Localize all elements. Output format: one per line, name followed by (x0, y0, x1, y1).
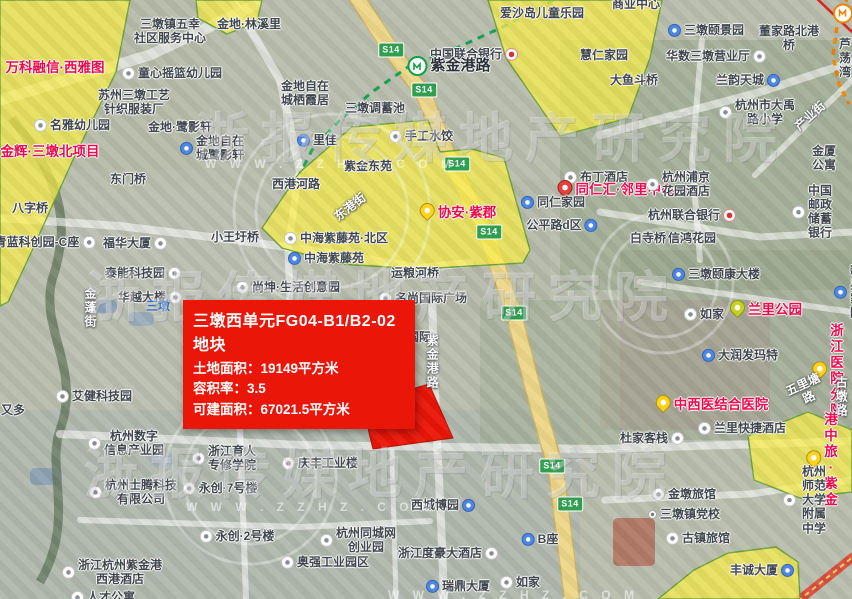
label-text: 青蓝科创园-C座 (0, 235, 79, 249)
label-text: 里佳 (313, 133, 337, 147)
map-label[interactable]: 庆丰工业楼 (282, 456, 358, 470)
building-icon (521, 196, 534, 209)
building-icon (702, 349, 715, 362)
map-label[interactable]: 永创·2号楼 (200, 529, 275, 543)
label-text: 童心摇篮幼儿园 (138, 66, 222, 80)
map-label[interactable]: 杜家客栈 (620, 431, 684, 445)
s14-road-shield: S14 (501, 306, 527, 321)
building-icon (462, 499, 475, 512)
label-text: 华数三墩营业厅 (666, 49, 750, 63)
map-label[interactable]: 杭州师范大学 附属中学 (783, 465, 829, 536)
map-label[interactable]: 三墩调蓄池 (345, 101, 405, 115)
label-text: 杭州士腾科技 有限公司 (105, 478, 177, 506)
poi-icon (192, 452, 205, 465)
building-icon (781, 564, 794, 577)
poi-icon (169, 291, 182, 304)
label-text: 公平路d区 (526, 218, 581, 232)
map-label[interactable]: 兰里快捷酒店 (698, 421, 786, 435)
map-label[interactable]: 慧仁家园 (580, 48, 628, 62)
building-icon (834, 286, 847, 299)
label-text: 名雅幼儿园 (50, 118, 110, 132)
label-text: 八字桥 (12, 201, 48, 215)
map-label[interactable]: 兰里公园 (730, 302, 802, 318)
map-label[interactable]: 协安·紫郡 (420, 205, 497, 221)
label-text: 奥强工业园区 (297, 555, 369, 569)
label-text: 东门桥 (110, 172, 146, 186)
label-text: 尚坤·生活创意园 (252, 280, 340, 294)
label-text: B座 (538, 532, 559, 546)
map-label[interactable]: 青蓝科创园-C座 (0, 235, 95, 249)
poi-icon (684, 308, 697, 321)
map-label[interactable]: 运粮河桥 (391, 266, 439, 280)
label-text: 西城博园 (411, 498, 459, 512)
map-label[interactable]: 三墩镇党校 (648, 507, 720, 521)
building-icon (522, 533, 535, 546)
label-text: 苏州三墩工艺 针织服装厂 (98, 88, 170, 116)
metro-icon-orange (833, 3, 852, 23)
map-label[interactable]: 泰能科技园 (105, 266, 181, 280)
map-label[interactable]: 如家 (500, 575, 540, 589)
map-label[interactable]: 小王圩桥 (211, 230, 259, 244)
s14-road-shield: S14 (557, 497, 583, 512)
map-label[interactable]: 西港河路 (272, 177, 320, 191)
label-text: 又多 (1, 403, 25, 417)
label-text: 董家路北港桥 (758, 24, 821, 52)
label-text: 爱沙岛儿童乐园 (500, 6, 584, 20)
poi-icon (154, 237, 167, 250)
label-text: 艾健科技园 (72, 389, 132, 403)
parcel-callout: 三墩西单元FG04-B1/B2-02地块 土地面积：19149平方米 容积率：3… (183, 300, 415, 429)
label-text: 紫金东苑 (344, 159, 392, 173)
label-text: 同仁家园 (537, 195, 585, 209)
map-label[interactable]: 万科融信·西雅图 (6, 60, 105, 76)
map-label[interactable]: 商业中心 (612, 0, 660, 11)
label-text: 运粮河桥 (391, 266, 439, 280)
map-label[interactable]: 白寺桥 (630, 231, 666, 245)
map-label[interactable]: 人才公寓 (71, 590, 135, 599)
label-text: 金地自在 城鹭影轩 (196, 134, 244, 162)
label-text: 慧仁家园 (580, 48, 628, 62)
poi-icon (485, 547, 498, 560)
poi-icon (284, 232, 297, 245)
metro-station-label[interactable]: 紫金港路 (407, 56, 490, 76)
poi-icon (320, 534, 333, 547)
label-text: 杭州师范大学 附属中学 (799, 465, 829, 536)
label-text: 中海紫藤苑·北区 (300, 231, 388, 245)
label-text: 浙江杭州紫金港 西港酒店 (78, 558, 162, 586)
map-label[interactable]: 八字桥 (12, 201, 48, 215)
map-label[interactable]: 大鱼斗桥 (610, 73, 658, 87)
label-text: 福华大厦 (103, 236, 151, 250)
street (60, 434, 852, 449)
label-text: 小王圩桥 (211, 230, 259, 244)
metro-icon (407, 56, 427, 76)
map-label[interactable]: 东门桥 (110, 172, 146, 186)
map-label[interactable]: B座 (522, 532, 559, 546)
map-label[interactable]: 华数三墩营业厅 (666, 49, 766, 63)
label-text: 紫金港路 (425, 334, 439, 390)
building-icon (180, 142, 193, 155)
map-label[interactable]: 同仁家园 (521, 195, 585, 209)
label-text: 中海紫藤苑 (304, 251, 364, 265)
label-text: 杜家客栈 (620, 431, 668, 445)
map-label[interactable]: 兰韵天城 (716, 73, 780, 87)
poi-icon (389, 130, 402, 143)
label-text: 金辉·三墩北项目 (1, 144, 100, 160)
bank-icon (505, 48, 518, 61)
poi-icon (89, 486, 102, 499)
s14-road-shield: S14 (539, 459, 565, 474)
poi-icon (82, 236, 95, 249)
building-icon (585, 219, 598, 232)
map-label[interactable]: 西城博园 (411, 498, 475, 512)
map-label[interactable]: 中国邮政 储蓄银行 (792, 184, 832, 241)
map-label[interactable]: 浙江育人 专修学院 (192, 444, 256, 472)
building-icon (767, 74, 780, 87)
poi-icon (792, 206, 805, 219)
label-text: 杭州数字 信息产业园 (104, 429, 164, 457)
map-label[interactable]: 如家 (684, 307, 724, 321)
map-label[interactable]: 三墩 (146, 299, 170, 313)
map-label[interactable]: 新星家园 (834, 264, 852, 321)
parcel-callout-plot-ratio: 容积率：3.5 (193, 379, 405, 399)
label-text: 三墩镇党校 (660, 507, 720, 521)
poi-icon (200, 530, 213, 543)
label-text: 紫金港路 (430, 57, 490, 75)
label-text: 如家 (516, 575, 540, 589)
map-label[interactable]: 苏州三墩工艺 针织服装厂 (98, 88, 170, 116)
label-text: 古镇旅馆 (682, 531, 730, 545)
label-text: 商业中心 (612, 0, 660, 11)
label-text: 庆丰工业楼 (298, 456, 358, 470)
label-text: 浙江育人 专修学院 (208, 444, 256, 472)
map-label[interactable]: 芦荡湾 (839, 37, 851, 79)
poi-icon (168, 267, 181, 280)
map-label[interactable]: 福华大厦 (103, 236, 167, 250)
label-text: 白寺桥 (630, 231, 666, 245)
label-text: 杭州市大禹 路小学 (735, 98, 795, 126)
poi-icon (671, 432, 684, 445)
label-text: 三墩颐康大楼 (688, 267, 760, 281)
elevated-road (798, 556, 852, 599)
map-label[interactable]: 奥强工业园区 (281, 555, 369, 569)
label-text: 杭州同城网 创业园 (336, 526, 396, 554)
poi-icon (34, 119, 47, 132)
metro-station-label[interactable]: 墩祥街 (833, 0, 852, 40)
label-text: 万科融信·西雅图 (6, 60, 105, 76)
map-label[interactable]: 杭州士腾科技 有限公司 (89, 478, 177, 506)
map-label[interactable]: 丰诚大厦 (730, 563, 794, 577)
label-text: 金墩旅馆 (668, 487, 716, 501)
road-name-label: 紫金港路 (425, 334, 439, 390)
map-label[interactable]: 金地自在 城栖霞居 (281, 79, 329, 107)
building-icon (288, 252, 301, 265)
label-text: 金厦公寓 (810, 144, 838, 172)
map-label[interactable]: 大润发玛特 (702, 348, 778, 362)
land-parcel-yellow[interactable] (488, 0, 662, 136)
map-label[interactable]: 古镇旅馆 (666, 531, 730, 545)
poi-icon (500, 576, 513, 589)
label-text: 兰里公园 (748, 302, 802, 318)
map-label[interactable]: 金辉·三墩北项目 (1, 144, 100, 160)
label-text: 芦荡湾 (839, 37, 851, 79)
map-label[interactable]: 紫金东苑 (344, 159, 392, 173)
s14-road-shield: S14 (411, 83, 437, 98)
poi-icon (783, 494, 796, 507)
map-label[interactable]: 杭州联合银行 (648, 208, 736, 222)
label-text: 杭州联合银行 (648, 208, 720, 222)
poi-icon (183, 482, 196, 495)
map-label[interactable]: 中海紫藤苑·北区 (284, 231, 388, 245)
map-label[interactable]: 杭州浦京 花园酒店 (646, 170, 710, 198)
label-text: 三墩镇五幸 社区服务中心 (134, 17, 206, 45)
poi-icon (698, 422, 711, 435)
poi-icon (236, 281, 249, 294)
map-label[interactable]: 浙江度豪大酒店 (398, 546, 498, 560)
map-label[interactable]: 金地·鹭影轩 (148, 120, 212, 134)
label-text: 金蓬街 (83, 287, 97, 329)
label-text: 浙江度豪大酒店 (398, 546, 482, 560)
label-text: 信鸿花园 (668, 231, 716, 245)
map-label[interactable]: 金厦公寓 (810, 144, 838, 172)
parcel-callout-title: 三墩西单元FG04-B1/B2-02地块 (193, 307, 405, 355)
map-label[interactable]: 信鸿花园 (668, 231, 716, 245)
poi-icon (122, 67, 135, 80)
poi-icon (666, 532, 679, 545)
map-label[interactable]: 金地自在 城鹭影轩 (180, 134, 244, 162)
label-text: 丰诚大厦 (730, 563, 778, 577)
label-text: 手工水饺 (405, 129, 453, 143)
map-label[interactable]: 三墩颐景园 (668, 23, 744, 37)
parcel-callout-buildable-area: 可建面积：67021.5平方米 (193, 400, 405, 420)
map-label[interactable]: 杭州数字 信息产业园 (88, 429, 164, 457)
label-text: 三墩 (146, 299, 170, 313)
label-text: 三墩调蓄池 (345, 101, 405, 115)
map-label[interactable]: 永创·7号楼 (183, 481, 258, 495)
label-text: 永创·2号楼 (216, 529, 275, 543)
label-text: 金地·林溪里 (217, 17, 281, 31)
s14-road-shield: S14 (378, 43, 404, 58)
bank-icon (723, 209, 736, 222)
label-text: 人才公寓 (87, 590, 135, 599)
poi-icon (282, 457, 295, 470)
map-label[interactable]: 浙江杭州紫金港 西港酒店 (62, 558, 162, 586)
map-label[interactable]: 中海紫藤苑 (288, 251, 364, 265)
dot-icon (648, 510, 657, 519)
building-icon (426, 580, 439, 593)
label-text: 中国邮政 储蓄银行 (808, 184, 832, 241)
building-icon (297, 134, 310, 147)
map-label[interactable]: 童心摇篮幼儿园 (122, 66, 222, 80)
map-label[interactable]: 尚坤·生活创意园 (236, 280, 340, 294)
label-text: 永创·7号楼 (199, 481, 258, 495)
map-label[interactable]: 杭州市大禹 路小学 (719, 98, 795, 126)
building-icon (668, 24, 681, 37)
label-text: 瑞鼎大厦 (442, 579, 490, 593)
poi-icon (646, 178, 659, 191)
label-text: 兰里快捷酒店 (714, 421, 786, 435)
satellite-map[interactable]: 三墩镇五幸 社区服务中心金地·林溪里童心摇篮幼儿园苏州三墩工艺 针织服装厂名雅幼… (0, 0, 852, 599)
map-label[interactable]: 三墩镇五幸 社区服务中心 (134, 17, 206, 45)
road-name-label: 金蓬街 (83, 287, 97, 329)
label-text: 西港河路 (272, 177, 320, 191)
map-label[interactable]: 名雅幼儿园 (34, 118, 110, 132)
building-icon (672, 268, 685, 281)
label-text: 中西医结合医院 (674, 397, 769, 413)
label-text: 如家 (700, 307, 724, 321)
map-label[interactable]: 手工水饺 (389, 129, 453, 143)
parcel-callout-land-area: 土地面积：19149平方米 (193, 359, 405, 379)
label-text: 协安·紫郡 (438, 205, 497, 221)
map-label[interactable]: 又多 (1, 403, 25, 417)
s14-road-shield: S14 (476, 225, 502, 240)
map-label[interactable]: 里佳 (297, 133, 337, 147)
label-text: 大鱼斗桥 (610, 73, 658, 87)
label-text: 金地自在 城栖霞居 (281, 79, 329, 107)
poi-icon (281, 556, 294, 569)
s14-road-shield: S14 (444, 157, 470, 172)
poi-icon (652, 488, 665, 501)
poi-icon (71, 591, 84, 599)
map-label[interactable]: 艾健科技园 (56, 389, 132, 403)
poi-icon (88, 437, 101, 450)
poi-icon (753, 50, 766, 63)
label-text: 杭州浦京 花园酒店 (662, 170, 710, 198)
poi-icon (719, 106, 732, 119)
poi-icon (56, 390, 69, 403)
poi-icon (62, 566, 75, 579)
map-label[interactable]: 爱沙岛儿童乐园 (500, 6, 584, 20)
map-label[interactable]: 三墩颐康大楼 (672, 267, 760, 281)
map-label[interactable]: 金墩旅馆 (652, 487, 716, 501)
map-label[interactable]: 金地·林溪里 (217, 17, 281, 31)
map-label[interactable]: 中西医结合医院 (656, 397, 769, 413)
label-text: 大润发玛特 (718, 348, 778, 362)
label-text: 泰能科技园 (105, 266, 165, 280)
label-text: 金地·鹭影轩 (148, 120, 212, 134)
label-text: 兰韵天城 (716, 73, 764, 87)
map-label[interactable]: 公平路d区 (526, 218, 597, 232)
map-label[interactable]: 董家路北港桥 (758, 24, 821, 52)
map-label[interactable]: 杭州同城网 创业园 (320, 526, 396, 554)
label-text: 三墩颐景园 (684, 23, 744, 37)
map-label[interactable]: 瑞鼎大厦 (426, 579, 490, 593)
